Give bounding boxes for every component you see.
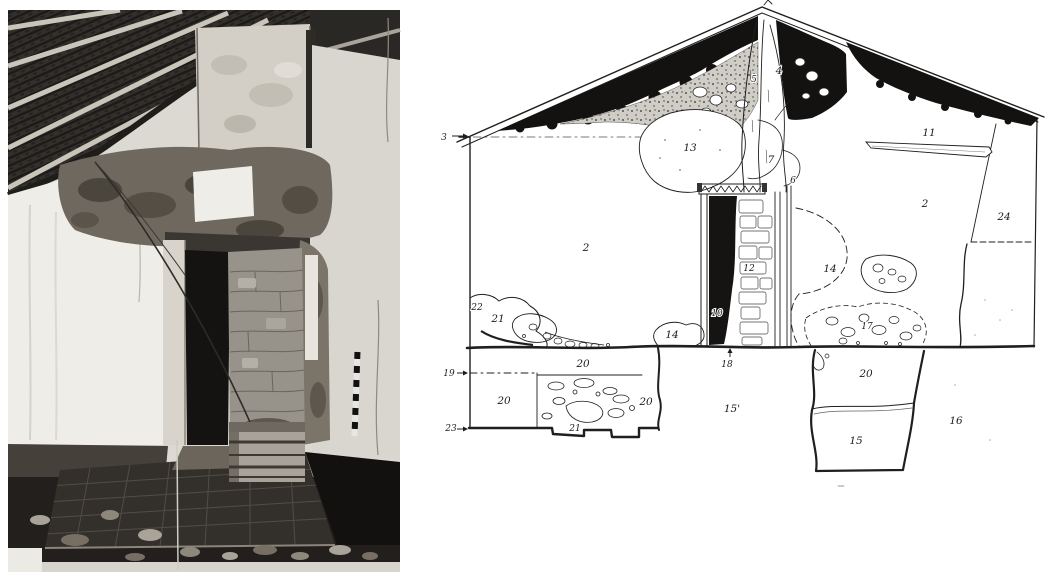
timber-11 (866, 142, 992, 157)
unit-label-20-21: 20 (638, 396, 653, 408)
unit-14-patch (654, 322, 704, 347)
figure-canvas: 3135476112224141210222114171819202020212… (0, 0, 1057, 583)
crate (229, 422, 305, 482)
unit-label-20-20: 20 (496, 395, 511, 407)
unit-label-2-7: 2 (582, 242, 590, 254)
unit-label-7-4: 7 (768, 154, 775, 166)
drawing-panel: 3135476112224141210222114171819202020212… (441, 0, 1044, 486)
unit-label-21-14: 21 (490, 313, 504, 325)
photo-panel (8, 10, 400, 572)
plumb-cord (177, 440, 178, 570)
unit-label-4-3: 4 (775, 65, 783, 77)
unit-14-boundary (791, 208, 916, 347)
unit-label-3-0: 3 (441, 133, 447, 143)
foundation-left (469, 348, 661, 437)
unit-24-boundary (954, 124, 1033, 441)
unit-label-11-6: 11 (922, 127, 935, 139)
left-wall-line (459, 137, 470, 428)
figure-svg: 3135476112224141210222114171819202020212… (0, 0, 1057, 583)
door-opening-shadow (185, 250, 230, 445)
stone-pier (228, 248, 305, 445)
unit-label-17-16: 17 (861, 322, 873, 332)
drawn-door-shadow (709, 196, 737, 345)
unit-label-10-12: 10 (711, 309, 723, 319)
arrow-23 (457, 427, 468, 432)
unit-label-22-13: 22 (470, 303, 483, 313)
unit-label-18-17: 18 (721, 360, 733, 370)
unit-label-23-23: 23 (444, 424, 457, 434)
plaster-patch (193, 166, 254, 222)
right-wall-line (1034, 119, 1037, 347)
wall-slit (305, 255, 318, 360)
unit-label-2-8: 2 (921, 198, 929, 210)
unit-label-15-26: 15 (849, 435, 863, 447)
unit-label-13-1: 13 (683, 142, 697, 154)
unit-label-14-10: 14 (823, 263, 836, 275)
unit-label-12-11: 12 (743, 264, 755, 274)
chimney-breast (195, 24, 316, 152)
unit-label-15'-24: 15' (724, 403, 740, 415)
unit-label-14-15: 14 (665, 329, 678, 341)
apex-tick (764, 0, 772, 5)
unit-label-21-22: 21 (568, 424, 580, 434)
unit-label-19-18: 19 (443, 369, 455, 379)
arrow-18 (728, 348, 733, 357)
unit-label-20-25: 20 (858, 368, 873, 380)
unit-label-6-5: 6 (790, 176, 796, 186)
floor (8, 440, 400, 572)
arrow-19 (457, 371, 468, 376)
gable-dark-masses (497, 16, 1039, 133)
unit-label-24-9: 24 (996, 211, 1010, 223)
unit-label-16-27: 16 (949, 415, 963, 427)
ground-line (467, 346, 1034, 348)
unit-label-20-19: 20 (575, 358, 590, 370)
unit-label-5-2: 5 (751, 75, 757, 85)
